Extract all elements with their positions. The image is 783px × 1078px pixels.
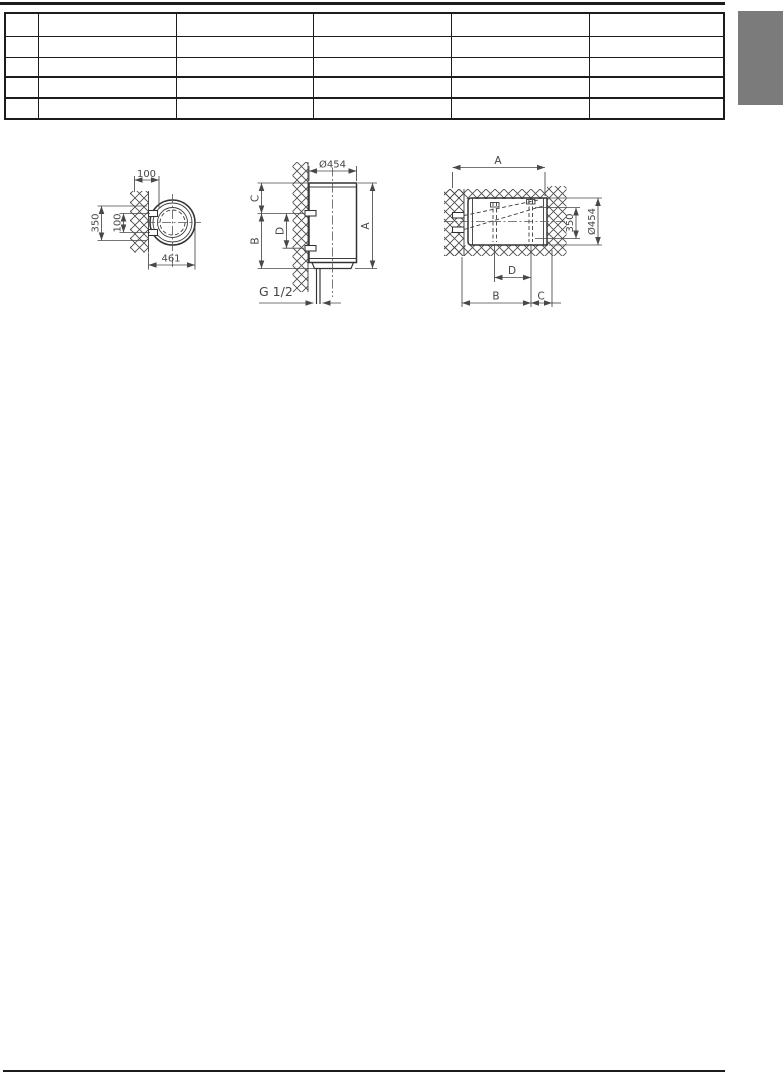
dim-label: Ø454 [586, 208, 598, 235]
dim-label: D [275, 227, 287, 235]
drawing-horizontal-mount: A 350 Ø454 D B C [444, 155, 602, 307]
dim-label: 100 [113, 213, 124, 232]
dim-label: A [360, 222, 372, 230]
dim-label: D [508, 265, 516, 277]
dim-label: Ø454 [319, 159, 346, 171]
wall-hatch [130, 191, 149, 253]
dim-label: C [250, 195, 262, 202]
dim-label: G 1/2 [259, 284, 293, 299]
wall-hatch [444, 246, 547, 257]
bottom-rule [3, 1070, 725, 1072]
wall-hatch [547, 186, 567, 256]
dim-label: B [492, 291, 499, 303]
dim-label: 350 [91, 213, 102, 232]
dim-label: 350 [565, 213, 576, 232]
dim-label: A [494, 155, 502, 167]
bracket [453, 213, 465, 219]
wall-hatch [293, 162, 309, 292]
dim-label: 461 [161, 254, 180, 265]
dim-label: C [537, 291, 544, 303]
technical-drawings: 100 350 100 461 [0, 0, 783, 1078]
bolt-head [491, 203, 500, 208]
bracket [305, 246, 316, 252]
drawing-top-view: 100 350 100 461 [91, 169, 202, 270]
dim-label: 100 [137, 169, 156, 180]
dim-label: B [250, 237, 262, 244]
document-page: 100 350 100 461 [0, 0, 783, 1078]
drawing-vertical-mount: Ø454 A C B D G 1/2 [250, 159, 378, 305]
bracket [453, 227, 465, 233]
bracket [305, 211, 316, 217]
connection-pipe [317, 269, 321, 305]
